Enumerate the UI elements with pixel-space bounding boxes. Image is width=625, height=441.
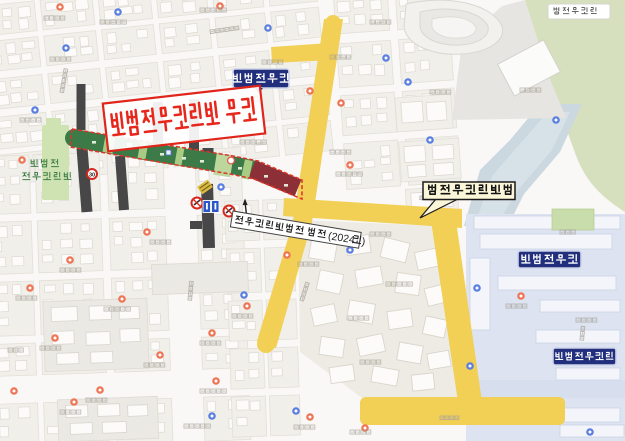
svg-text:30: 30: [89, 173, 95, 179]
